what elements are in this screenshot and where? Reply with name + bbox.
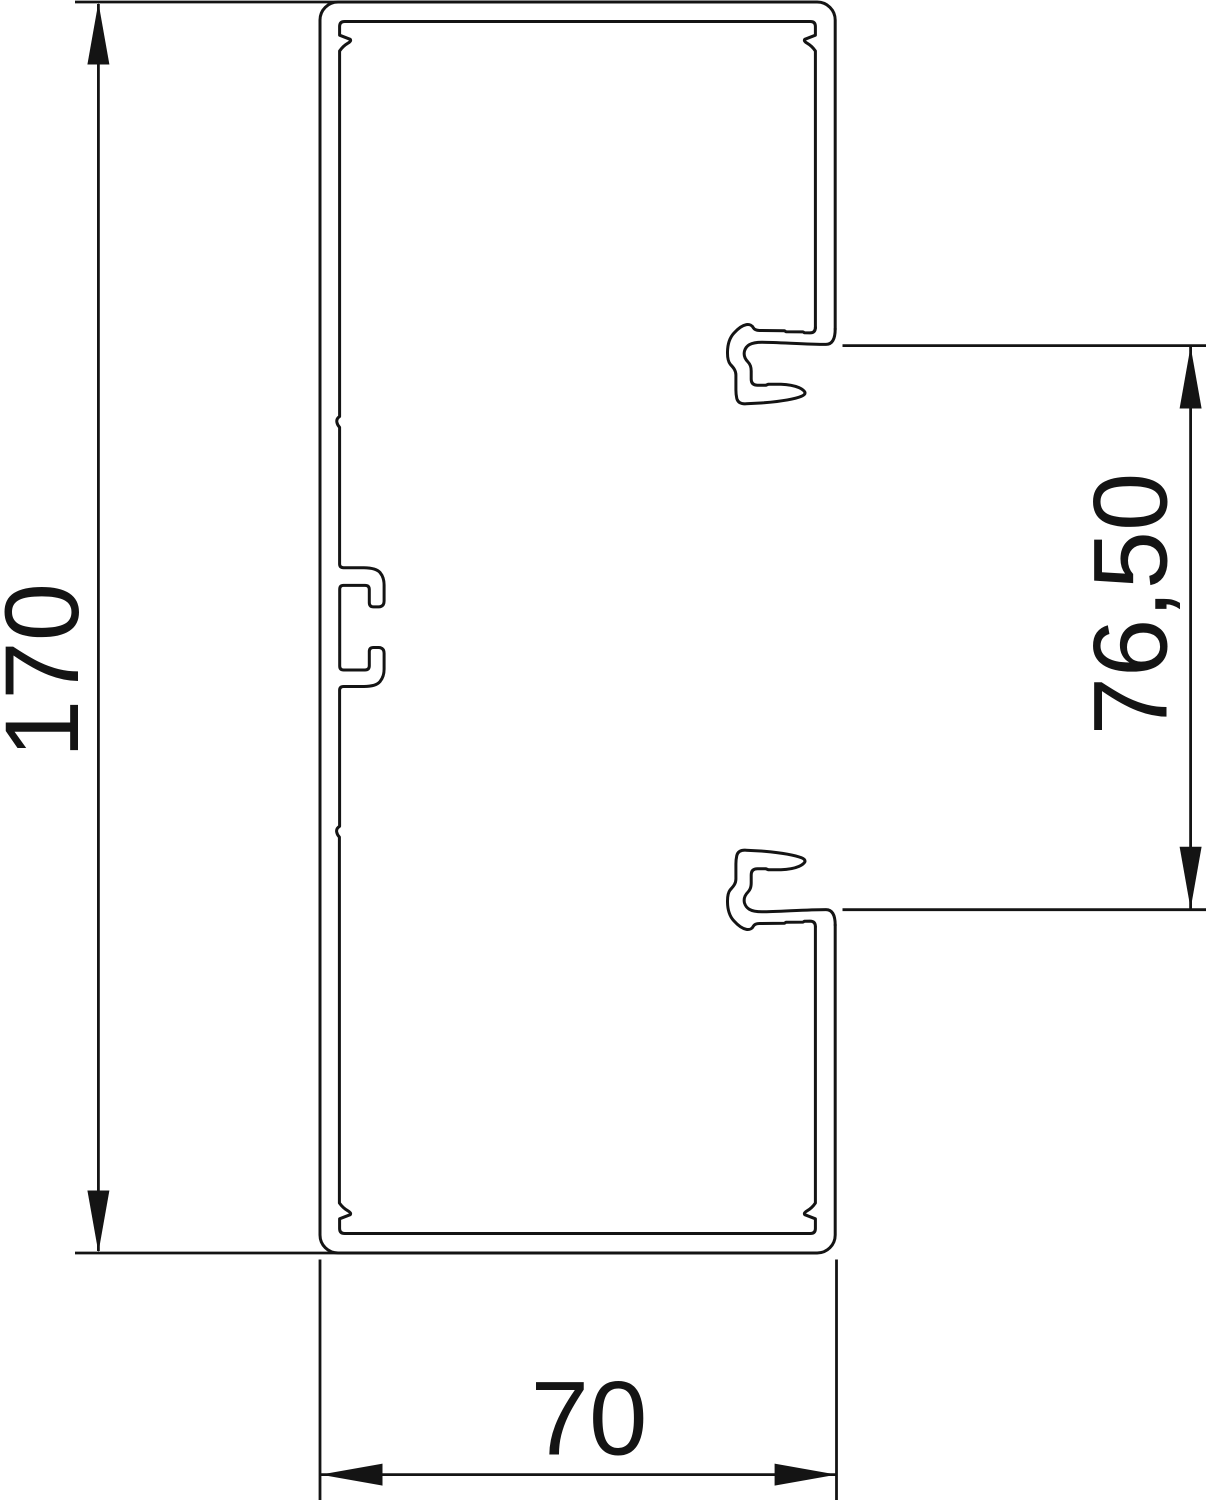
- svg-text:76,50: 76,50: [1073, 473, 1190, 736]
- svg-text:70: 70: [531, 1361, 648, 1478]
- svg-text:170: 170: [0, 583, 101, 758]
